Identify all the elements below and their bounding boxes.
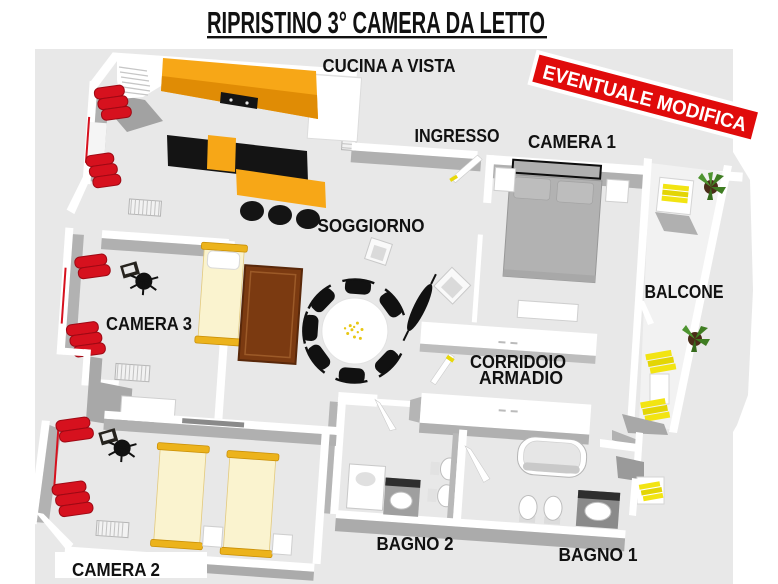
svg-text:CAMERA 2: CAMERA 2	[72, 560, 160, 580]
svg-text:CAMERA 3: CAMERA 3	[106, 314, 192, 334]
svg-text:CAMERA 1: CAMERA 1	[528, 132, 616, 152]
svg-text:BAGNO 2: BAGNO 2	[377, 534, 454, 554]
svg-text:INGRESSO: INGRESSO	[415, 126, 500, 146]
svg-text:BAGNO 1: BAGNO 1	[559, 545, 638, 565]
svg-text:ARMADIO: ARMADIO	[479, 368, 563, 388]
svg-text:SOGGIORNO: SOGGIORNO	[318, 216, 425, 236]
svg-text:BALCONE: BALCONE	[645, 282, 724, 302]
svg-text:CUCINA A VISTA: CUCINA A VISTA	[323, 56, 456, 76]
svg-text:RIPRISTINO 3° CAMERA DA LETTO: RIPRISTINO 3° CAMERA DA LETTO	[207, 5, 545, 40]
